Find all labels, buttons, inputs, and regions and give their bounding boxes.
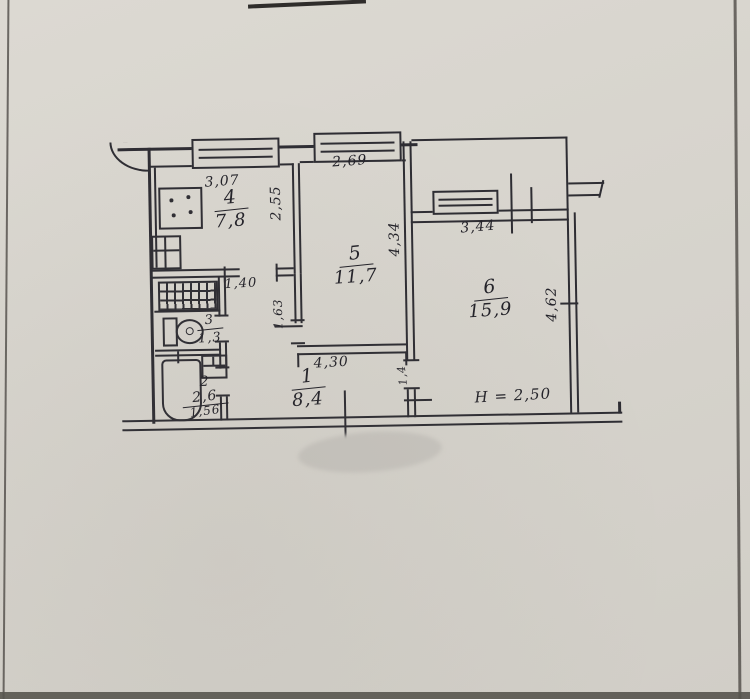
window-icon-kitchen (191, 138, 280, 170)
room-number: 4 (212, 187, 248, 212)
room-label-2: 2 2,6 1,56 (181, 374, 228, 418)
page-edge-right (734, 0, 741, 699)
dim-room5-bottom: 4,30 (297, 354, 366, 372)
room-label-5: 5 11,7 (327, 244, 384, 288)
dim-ceiling-height: H = 2,50 (458, 386, 569, 407)
dim-tick (560, 302, 578, 304)
dim-room6-door: 1,4 (395, 358, 411, 393)
window-icon-room6 (432, 190, 498, 215)
room-number: 3 (196, 312, 223, 330)
wall-room6-left-lower (407, 389, 416, 417)
wall-room5-room6-upper (402, 141, 415, 360)
room-label-4: 4 7,8 (202, 188, 259, 232)
dim-tick (530, 187, 533, 223)
room-label-6: 6 15,9 (462, 277, 519, 321)
room-number: 5 (337, 242, 373, 267)
sink-icon (151, 235, 182, 270)
wall-room6-right (567, 212, 579, 412)
dim-tick (404, 399, 432, 401)
room-area: 11,7 (327, 264, 384, 289)
dim-kitchen-side: 2,55 (269, 177, 285, 229)
room-area: 1,3 (192, 328, 227, 346)
scanned-floor-plan-page: 4 7,8 5 11,7 6 15,9 3 1,3 1 8,4 2 2,6 1,… (0, 0, 750, 699)
stove-icon (158, 187, 203, 230)
room-label-3: 3 1,3 (192, 313, 227, 345)
wall-room5-bottom (297, 343, 407, 355)
page-edge-bottom (0, 692, 750, 699)
room-area: 8,4 (277, 387, 338, 412)
page-edge-left (3, 0, 10, 699)
dim-room5-side: 4,34 (387, 211, 403, 267)
wall-bottom-end-hook (618, 402, 621, 414)
door-tick (215, 366, 229, 368)
wall-stub-top (568, 182, 604, 185)
vent-grille-icon (158, 281, 219, 312)
wall-kitchen-room5 (292, 163, 302, 273)
floor-plan-drawing: 4 7,8 5 11,7 6 15,9 3 1,3 1 8,4 2 2,6 1,… (105, 123, 631, 452)
wall-stub-bottom (568, 194, 600, 197)
balcony-outline-top (411, 136, 567, 141)
wall-room5-hall (294, 273, 303, 323)
bathtub-faucet-tick (177, 351, 179, 363)
room-area: 7,8 (202, 208, 259, 233)
dim-room6-side: 4,62 (544, 276, 560, 332)
room-number: 6 (472, 276, 508, 301)
entrance-arc-line (109, 142, 150, 173)
door-tick (291, 342, 305, 344)
dim-hall-opening: 1,40 (212, 276, 271, 293)
balcony-outline-right (565, 136, 568, 212)
door-jamb-tick (276, 264, 278, 282)
wall-kitchen-bottom-right (276, 267, 294, 276)
dim-room5-hall-wall: 1,63 (272, 292, 285, 336)
door-tick (291, 319, 305, 321)
room-area: 15,9 (462, 298, 519, 323)
page-edge-top-sliver (248, 0, 366, 9)
room-label-1: 1 8,4 (277, 367, 338, 411)
